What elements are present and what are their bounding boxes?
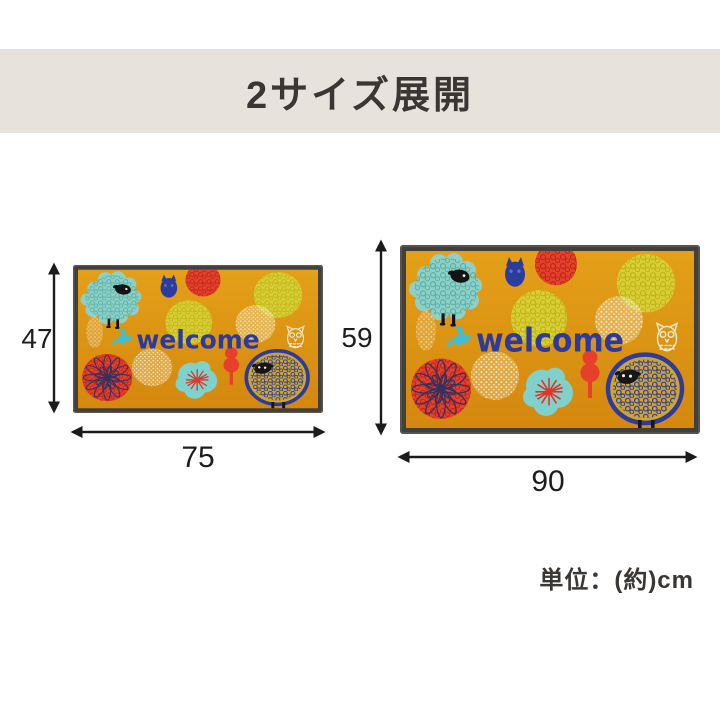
width-arrow-large: [397, 450, 698, 464]
mat-small-image: [73, 265, 323, 413]
width-label-small: 75: [166, 443, 230, 473]
width-label-large: 90: [516, 467, 580, 497]
height-label-large: 59: [335, 324, 379, 352]
size-infographic: 2サイズ展開: [0, 0, 720, 720]
width-arrow-small: [70, 425, 326, 439]
page-title: 2サイズ展開: [246, 64, 474, 119]
height-label-small: 47: [15, 325, 59, 353]
unit-note: 単位：(約)cm: [539, 560, 694, 595]
mat-large-image: [400, 245, 700, 434]
header-band: 2サイズ展開: [0, 49, 720, 133]
